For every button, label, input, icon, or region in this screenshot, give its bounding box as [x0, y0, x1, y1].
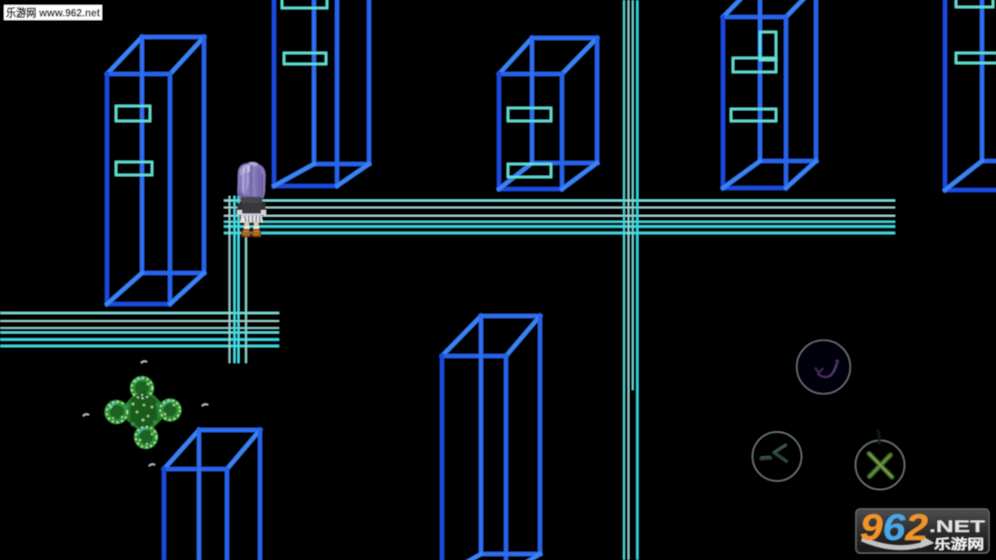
- svg-text:962: 962: [860, 507, 928, 548]
- svg-text:乐游网 www.962.net: 乐游网 www.962.net: [6, 6, 100, 20]
- svg-text:乐游网: 乐游网: [934, 536, 984, 552]
- svg-text:.NET: .NET: [929, 517, 986, 536]
